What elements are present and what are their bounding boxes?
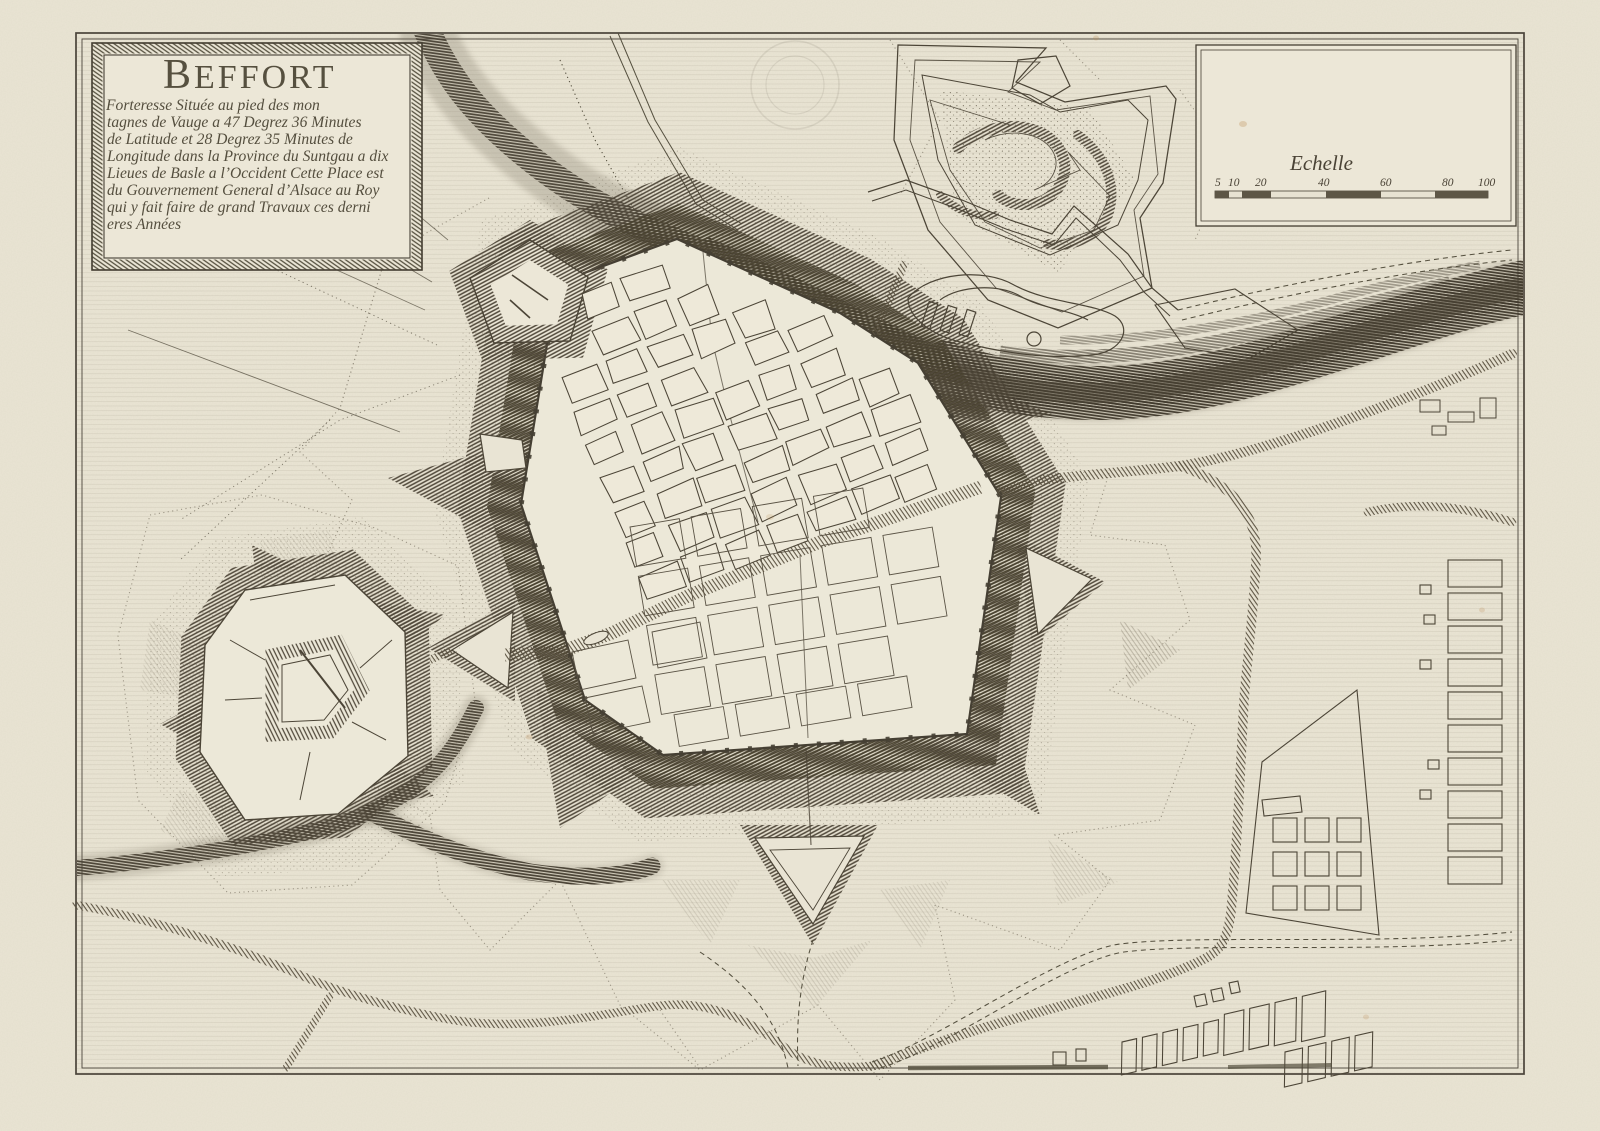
- svg-text:80: 80: [1442, 177, 1454, 189]
- svg-text:10: 10: [1228, 177, 1240, 189]
- svg-text:40: 40: [1318, 177, 1330, 189]
- svg-text:du Gouvernement General d’Alsa: du Gouvernement General d’Alsace au Roy: [107, 182, 379, 199]
- svg-text:Forteresse Située au pied des: Forteresse Située au pied des mon: [105, 97, 320, 114]
- svg-text:qui y fait faire de grand Trav: qui y fait faire de grand Travaux ces de…: [107, 199, 371, 216]
- svg-text:60: 60: [1380, 177, 1392, 189]
- svg-text:Lieues de Basle a l’Occident C: Lieues de Basle a l’Occident Cette Place…: [106, 165, 384, 182]
- svg-text:Longitude dans la Province du: Longitude dans la Province du Suntgau a …: [106, 148, 388, 165]
- svg-text:BEFFORT: BEFFORT: [163, 52, 337, 98]
- svg-text:tagnes de Vauge a 47 Degrez 36: tagnes de Vauge a 47 Degrez 36 Minutes: [107, 114, 362, 131]
- svg-text:5: 5: [1215, 177, 1221, 189]
- svg-text:Echelle: Echelle: [1289, 151, 1353, 175]
- svg-text:de Latitude et 28 Degrez 35 Mi: de Latitude et 28 Degrez 35 Minutes de: [107, 131, 353, 148]
- svg-text:eres Années: eres Années: [107, 216, 181, 233]
- svg-text:20: 20: [1255, 177, 1267, 189]
- svg-text:100: 100: [1478, 177, 1496, 189]
